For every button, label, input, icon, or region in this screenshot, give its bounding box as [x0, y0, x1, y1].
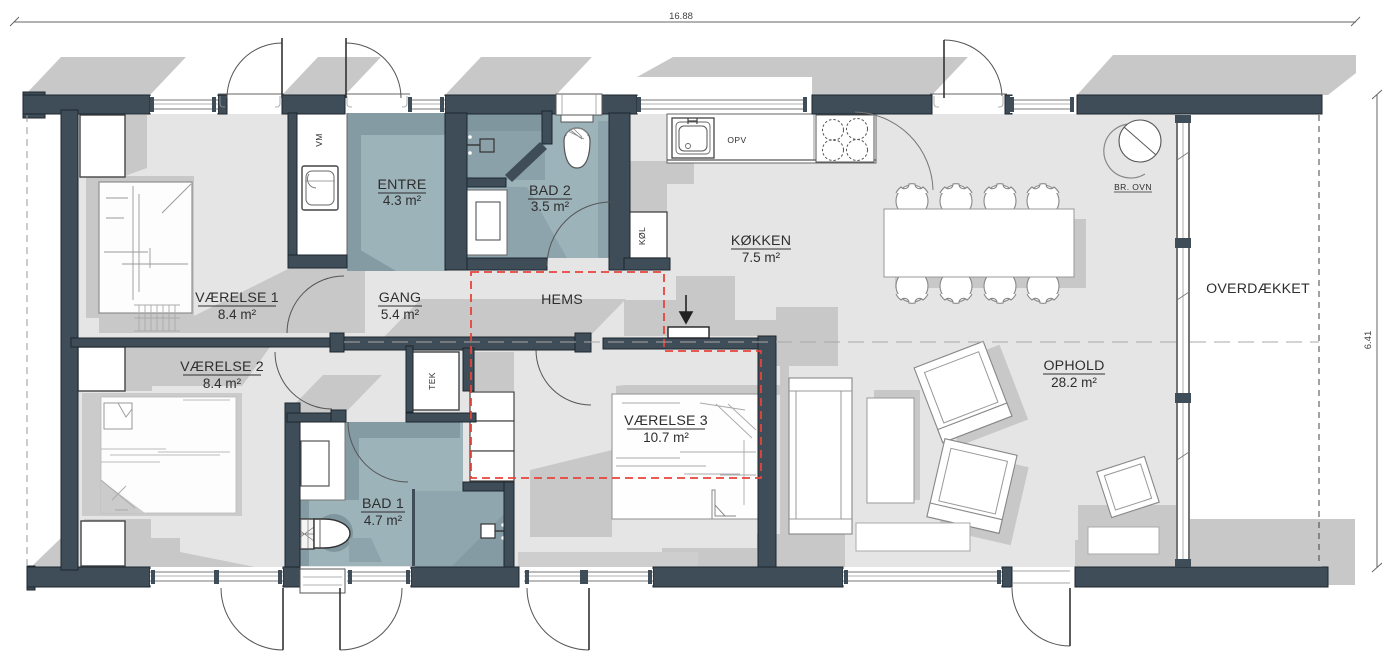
svg-text:VÆRELSE 3: VÆRELSE 3 [624, 413, 708, 429]
svg-text:VM: VM [314, 133, 324, 147]
svg-text:4.7 m²: 4.7 m² [364, 513, 403, 528]
svg-text:7.5 m²: 7.5 m² [742, 250, 781, 265]
svg-text:KØKKEN: KØKKEN [731, 233, 791, 249]
svg-text:KØL: KØL [637, 227, 647, 245]
svg-text:28.2 m²: 28.2 m² [1051, 375, 1097, 390]
svg-text:BAD 2: BAD 2 [529, 183, 571, 199]
svg-text:8.4 m²: 8.4 m² [218, 307, 257, 322]
svg-text:4.3 m²: 4.3 m² [383, 193, 422, 208]
svg-text:VÆRELSE 1: VÆRELSE 1 [195, 290, 279, 306]
svg-text:TEK: TEK [427, 372, 437, 390]
svg-text:HEMS: HEMS [541, 292, 583, 308]
svg-text:6.41: 6.41 [1363, 331, 1374, 350]
svg-text:3.5 m²: 3.5 m² [531, 199, 570, 214]
svg-text:8.4 m²: 8.4 m² [203, 376, 242, 391]
svg-text:ENTRE: ENTRE [377, 177, 426, 193]
svg-text:10.7 m²: 10.7 m² [643, 430, 689, 445]
svg-text:OPHOLD: OPHOLD [1043, 358, 1104, 374]
svg-text:5.4 m²: 5.4 m² [381, 307, 420, 322]
svg-text:OVERDÆKKET: OVERDÆKKET [1206, 281, 1310, 297]
svg-text:GANG: GANG [379, 290, 422, 306]
svg-text:BR. OVN: BR. OVN [1114, 182, 1152, 192]
svg-text:VÆRELSE 2: VÆRELSE 2 [180, 359, 264, 375]
svg-text:16.88: 16.88 [669, 11, 693, 22]
svg-text:BAD 1: BAD 1 [362, 496, 404, 512]
svg-text:OPV: OPV [727, 135, 746, 145]
